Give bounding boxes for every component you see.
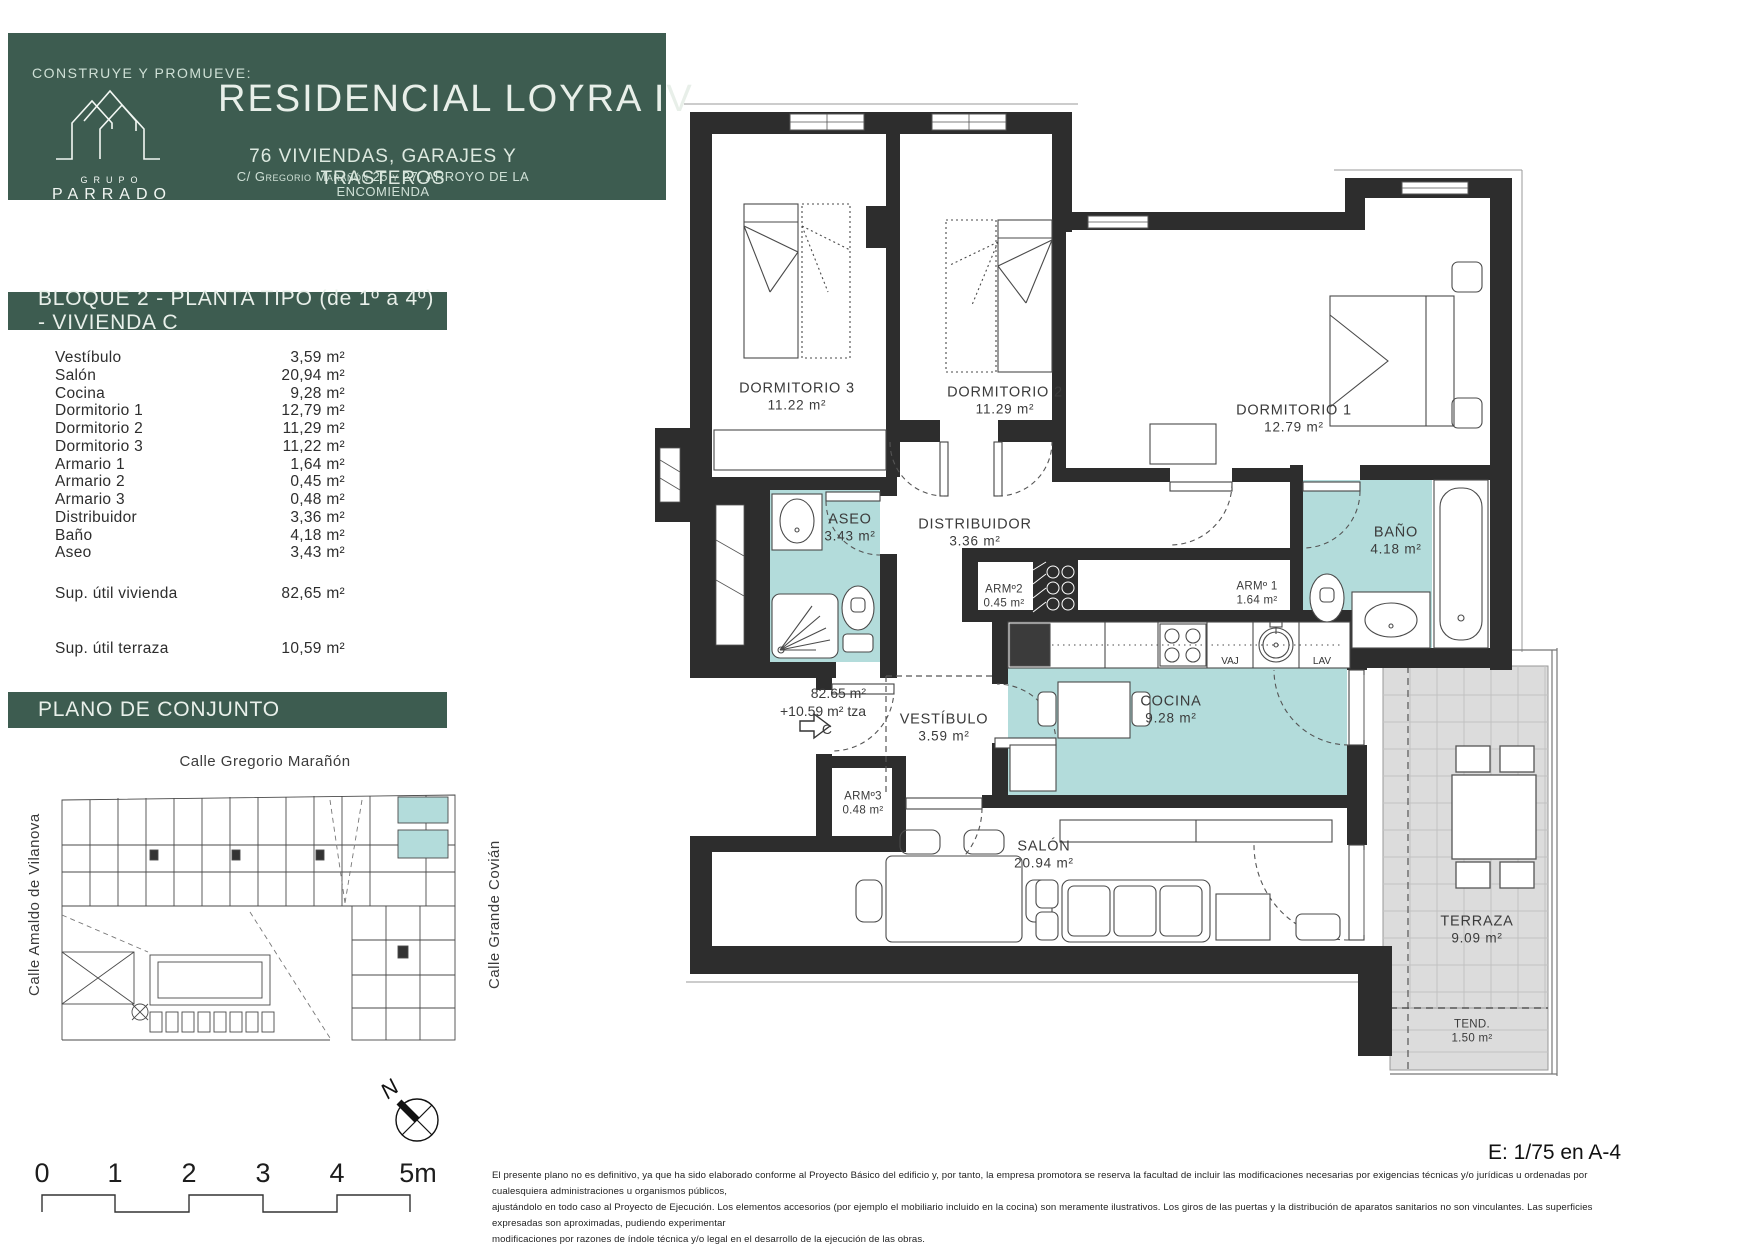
room-name: DORMITORIO 3 [739,380,855,397]
row-value: 3,36 m² [290,509,345,527]
grupo-parrado-logo-icon [42,81,182,173]
sideboard-icon [1060,820,1332,842]
site-plan-drawing [25,735,470,1050]
room-name: TERRAZA [1440,913,1513,930]
row-label: Dormitorio 3 [55,438,143,456]
row-value: 0,48 m² [290,491,345,509]
row-value: 3,59 m² [290,349,345,367]
armchair-icon [1296,914,1340,940]
total-dwelling-row: Sup. útil vivienda 82,65 m² [55,585,345,603]
table-row: Baño4,18 m² [55,527,345,545]
disclaimer-line: El presente plano no es definitivo, ya q… [492,1168,1602,1200]
room-name: ARMº 1 [1236,580,1277,594]
sink-icon [772,494,822,550]
table-row: Cocina9,28 m² [55,385,345,403]
total-label: Sup. útil vivienda [55,585,178,603]
table-row: Vestíbulo3,59 m² [55,349,345,367]
coffee-table-icon [1216,894,1270,940]
bathtub-icon [1434,480,1488,648]
room-area: 9.28 m² [1140,711,1201,727]
entry-area-label: 82.65 m² +10.59 m² tza C [740,684,866,739]
project-title: RESIDENCIAL LOYRA IV [218,78,694,121]
room-label-dormitorio1: DORMITORIO 1 12.79 m² [1236,402,1352,435]
room-name: COCINA [1140,693,1201,710]
row-value: 11,29 m² [283,420,345,438]
room-area: 4.18 m² [1370,542,1421,558]
row-label: Aseo [55,544,92,562]
room-label-bano: BAÑO 4.18 m² [1370,524,1421,557]
entry-total-terrace: +10.59 m² tza [780,703,866,719]
table-row: Armario 30,48 m² [55,491,345,509]
room-name: TEND. [1451,1018,1492,1032]
table-row: Dormitorio 112,79 m² [55,402,345,420]
room-name: DORMITORIO 2 [947,384,1063,401]
room-area: 1.50 m² [1451,1032,1492,1046]
bed-single-icon [744,204,798,358]
room-area: 9.09 m² [1440,931,1513,947]
header-panel: CONSTRUYE Y PROMUEVE: GRUPO PARRADO RESI… [8,33,666,200]
scale-note: E: 1/75 en A-4 [1488,1141,1621,1165]
room-label-dormitorio3: DORMITORIO 3 11.22 m² [739,380,855,413]
wardrobe-icon [1150,424,1216,464]
row-label: Armario 3 [55,491,125,509]
table-row: Armario 11,64 m² [55,456,345,474]
wardrobe-dotted-icon [946,220,998,372]
total-value: 10,59 m² [281,640,345,658]
row-value: 9,28 m² [290,385,345,403]
table-row: Dormitorio 311,22 m² [55,438,345,456]
room-name: ASEO [824,511,875,528]
row-label: Baño [55,527,92,545]
site-plan-bar: PLANO DE CONJUNTO [8,692,447,728]
toilet-icon [842,586,874,652]
room-area: 3.36 m² [918,534,1032,550]
room-label-vestibulo: VESTÍBULO 3.59 m² [900,711,989,744]
row-value: 12,79 m² [281,402,345,420]
unit-title-bar: BLOQUE 2 - PLANTA TIPO (de 1º a 4º) - VI… [8,292,447,330]
row-value: 11,22 m² [283,438,345,456]
lav-label: LAV [1313,656,1331,667]
room-label-aseo: ASEO 3.43 m² [824,511,875,544]
total-label: Sup. útil terraza [55,640,169,658]
total-terrace-row: Sup. útil terraza 10,59 m² [55,640,345,658]
table-row: Distribuidor3,36 m² [55,509,345,527]
room-area: 3.43 m² [824,529,875,545]
room-label-cocina: COCINA 9.28 m² [1140,693,1201,726]
logo-text-parrado: PARRADO [42,186,182,204]
project-address: C/ Gregorio Marañón 25 y 27. ARROYO DE L… [208,169,558,199]
table-row: Armario 20,45 m² [55,473,345,491]
row-label: Vestíbulo [55,349,121,367]
wardrobe-dotted-icon [802,204,850,358]
disclaimer-line: modificaciones por razones de índole téc… [492,1232,1602,1248]
scale-bar [30,1185,430,1220]
room-label-armario2: ARMº2 0.45 m² [983,583,1024,610]
table-row: Aseo3,43 m² [55,544,345,562]
disclaimer-line: ajustándolo en todo caso al Proyecto de … [492,1200,1602,1232]
room-name: DORMITORIO 1 [1236,402,1352,419]
floor-plan-drawing: VAJ LAV [640,85,1570,1090]
table-row: Dormitorio 211,29 m² [55,420,345,438]
room-name: DISTRIBUIDOR [918,516,1032,533]
room-label-armario1: ARMº 1 1.64 m² [1236,580,1277,607]
room-area: 20.94 m² [1014,856,1074,872]
terrace-area [1383,648,1557,1076]
room-name: SALÓN [1014,838,1074,855]
area-table: Vestíbulo3,59 m² Salón20,94 m² Cocina9,2… [55,349,345,562]
room-label-armario3: ARMº3 0.48 m² [842,790,883,817]
room-area: 12.79 m² [1236,420,1352,436]
disclaimer-text: El presente plano no es definitivo, ya q… [492,1168,1602,1248]
row-label: Armario 2 [55,473,125,491]
row-label: Dormitorio 2 [55,420,143,438]
row-label: Dormitorio 1 [55,402,143,420]
room-area: 0.45 m² [983,597,1024,611]
bed-double-icon [1330,262,1482,428]
room-area: 0.48 m² [842,804,883,818]
street-label-right: Calle Grande Covián [486,770,503,1060]
row-value: 3,43 m² [290,544,345,562]
room-label-terraza: TERRAZA 9.09 m² [1440,913,1513,946]
sink-icon [1352,592,1430,648]
brochure-page: { "header": { "tagline": "CONSTRUYE Y PR… [0,0,1755,1240]
row-value: 4,18 m² [290,527,345,545]
north-label: N [375,1074,403,1104]
row-value: 1,64 m² [290,456,345,474]
row-value: 20,94 m² [281,367,345,385]
room-name: BAÑO [1370,524,1421,541]
dresser-icon [714,430,886,470]
entry-total-dwelling: 82.65 m² [811,685,866,701]
kitchen-counter [1008,622,1350,668]
room-label-distribuidor: DISTRIBUIDOR 3.36 m² [918,516,1032,549]
bed-single-icon [998,220,1052,372]
entry-unit-letter: C [822,721,866,737]
room-name: ARMº2 [983,583,1024,597]
room-area: 1.64 m² [1236,594,1277,608]
total-value: 82,65 m² [281,585,345,603]
room-area: 11.29 m² [947,402,1063,418]
room-label-salon: SALÓN 20.94 m² [1014,838,1074,871]
logo-text-grupo: GRUPO [52,175,172,185]
room-label-dormitorio2: DORMITORIO 2 11.29 m² [947,384,1063,417]
vaj-label: VAJ [1221,656,1239,667]
sofa-icon [1036,880,1210,942]
north-arrow-icon: N [375,1070,460,1155]
row-value: 0,45 m² [290,473,345,491]
room-area: 11.22 m² [739,398,855,414]
room-name: VESTÍBULO [900,711,989,728]
table-row: Salón20,94 m² [55,367,345,385]
room-name: ARMº3 [842,790,883,804]
row-label: Salón [55,367,96,385]
row-label: Armario 1 [55,456,125,474]
room-area: 3.59 m² [900,729,989,745]
row-label: Distribuidor [55,509,137,527]
appliance-icon [1010,745,1056,791]
shower-icon [772,594,838,658]
row-label: Cocina [55,385,105,403]
room-label-tendedero: TEND. 1.50 m² [1451,1018,1492,1045]
